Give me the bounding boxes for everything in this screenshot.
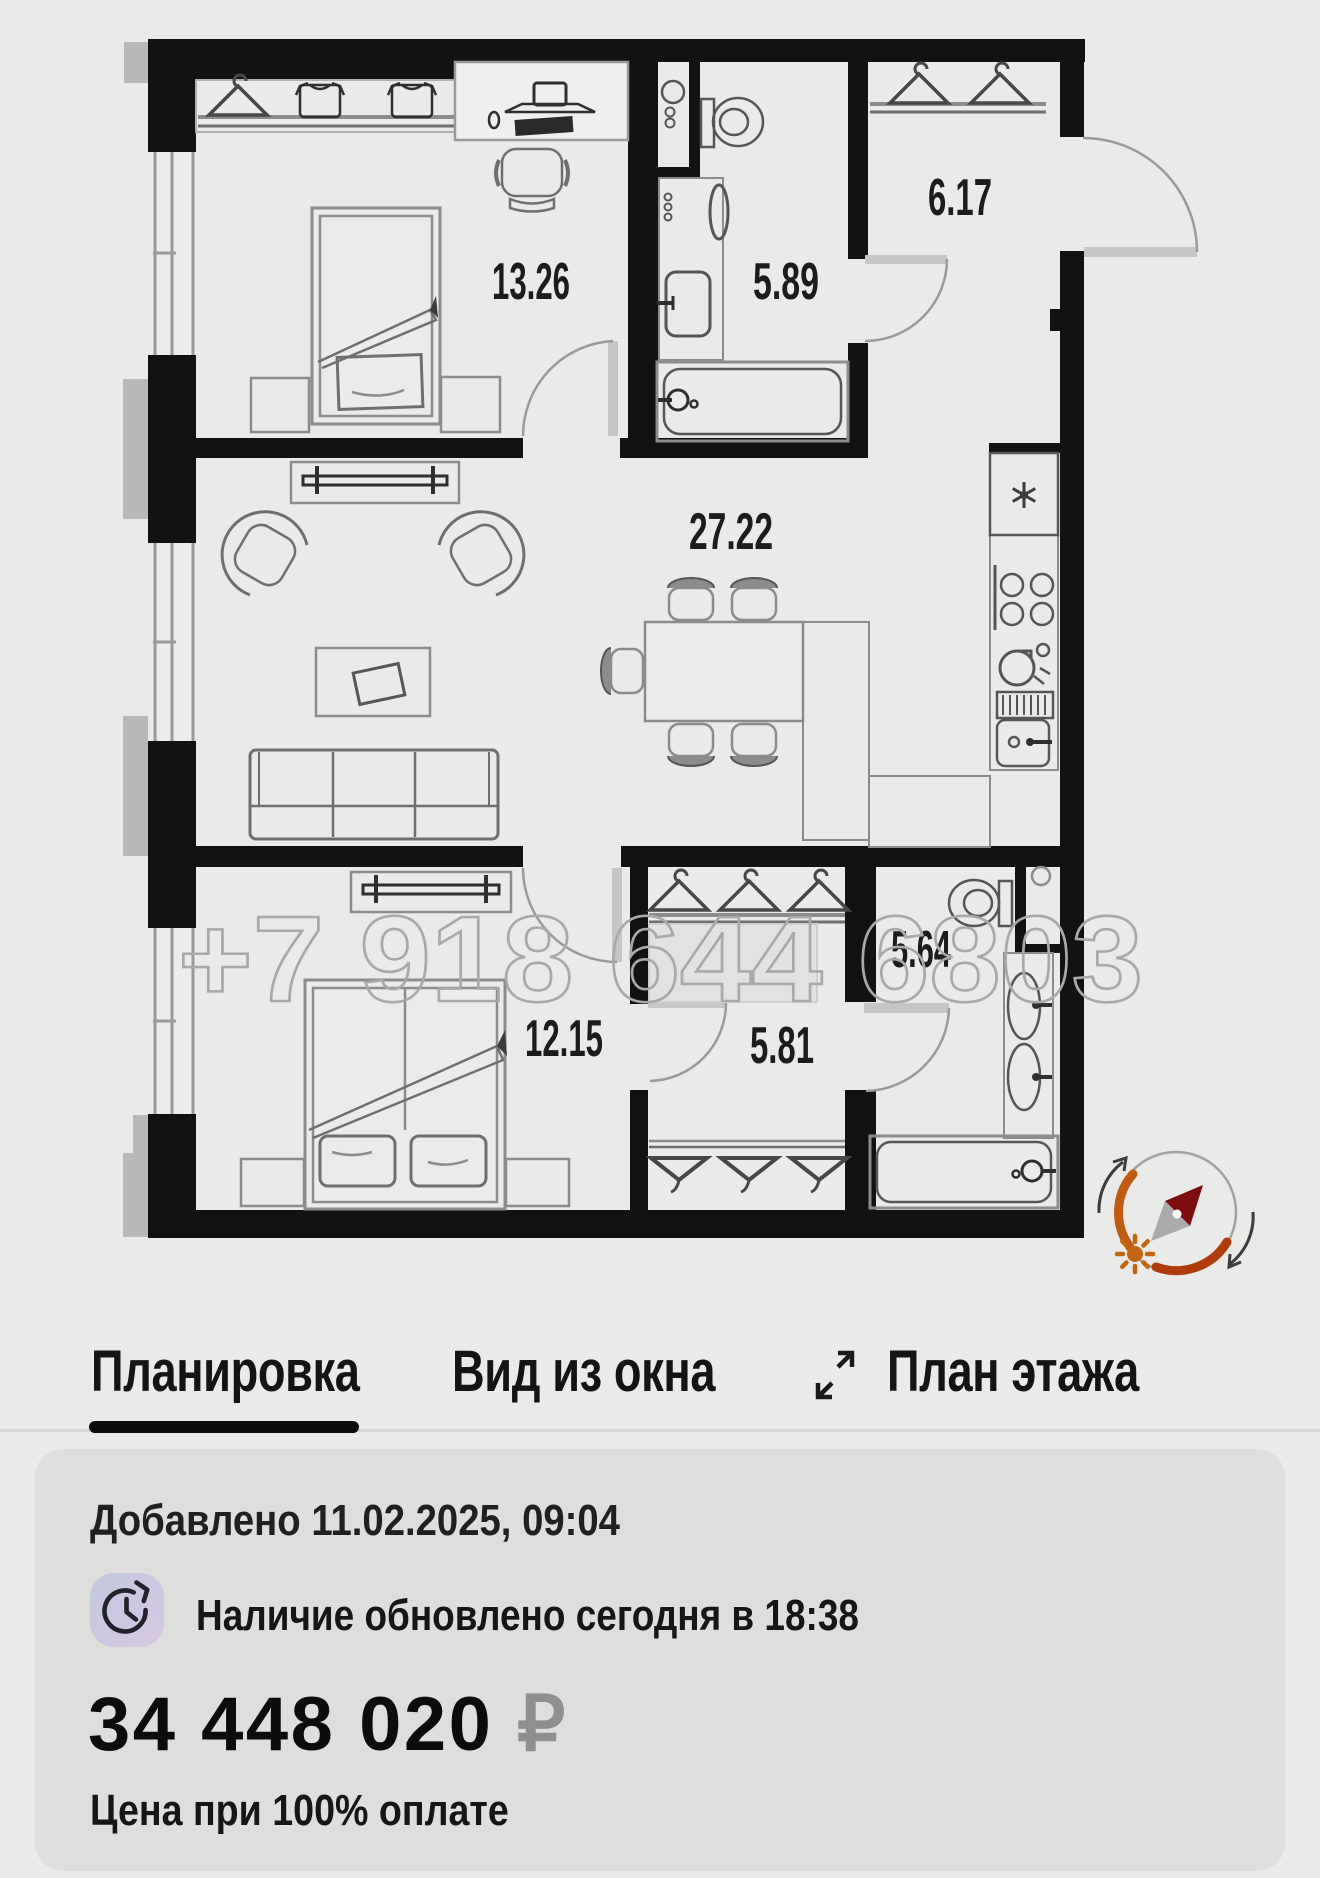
svg-text:5.89: 5.89	[753, 253, 819, 311]
svg-text:27.22: 27.22	[689, 503, 773, 561]
svg-text:+7 918 644 6803: +7 918 644 6803	[178, 891, 1143, 1027]
svg-text:6.17: 6.17	[928, 169, 992, 227]
svg-text:13.26: 13.26	[492, 253, 570, 311]
